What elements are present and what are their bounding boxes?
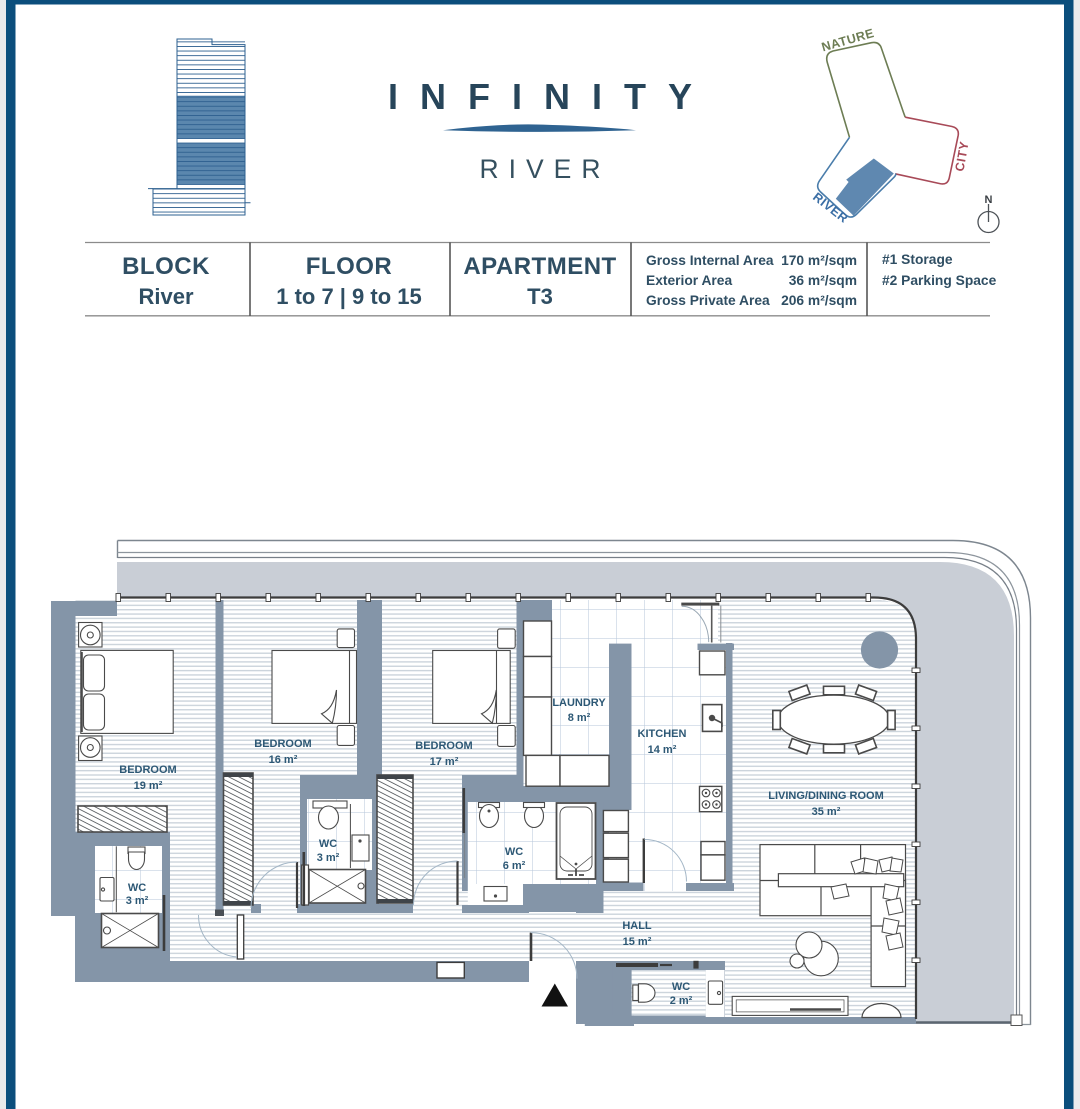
svg-text:35 m²: 35 m² bbox=[812, 806, 841, 818]
svg-text:16 m²: 16 m² bbox=[269, 754, 298, 766]
svg-text:6 m²: 6 m² bbox=[503, 860, 526, 872]
svg-text:LIVING/DINING ROOM: LIVING/DINING ROOM bbox=[768, 790, 884, 802]
svg-text:WC: WC bbox=[505, 846, 523, 858]
svg-text:HALL: HALL bbox=[622, 920, 652, 932]
svg-text:WC: WC bbox=[128, 882, 146, 894]
svg-text:INFINITY: INFINITY bbox=[388, 76, 714, 117]
svg-text:BEDROOM: BEDROOM bbox=[119, 764, 176, 776]
svg-text:FLOOR: FLOOR bbox=[306, 253, 393, 280]
svg-text:206 m²/sqm: 206 m²/sqm bbox=[781, 293, 857, 308]
svg-text:WC: WC bbox=[319, 838, 337, 850]
svg-text:8 m²: 8 m² bbox=[568, 712, 591, 724]
svg-text:#1 Storage: #1 Storage bbox=[882, 252, 953, 267]
svg-text:1 to 7 | 9 to 15: 1 to 7 | 9 to 15 bbox=[276, 284, 422, 309]
svg-text:14 m²: 14 m² bbox=[648, 744, 677, 756]
svg-text:2 m²: 2 m² bbox=[670, 995, 693, 1007]
svg-text:BLOCK: BLOCK bbox=[122, 253, 210, 280]
svg-text:LAUNDRY: LAUNDRY bbox=[552, 697, 606, 709]
svg-text:19 m²: 19 m² bbox=[134, 780, 163, 792]
svg-text:Gross Private Area: Gross Private Area bbox=[646, 293, 770, 308]
svg-text:River: River bbox=[138, 284, 193, 309]
svg-text:Exterior Area: Exterior Area bbox=[646, 273, 732, 288]
svg-text:36 m²/sqm: 36 m²/sqm bbox=[789, 273, 857, 288]
svg-text:BEDROOM: BEDROOM bbox=[254, 738, 311, 750]
svg-text:#2 Parking Space: #2 Parking Space bbox=[882, 273, 997, 288]
svg-text:N: N bbox=[985, 194, 993, 206]
svg-text:T3: T3 bbox=[527, 284, 553, 309]
svg-text:CITY: CITY bbox=[953, 140, 972, 173]
svg-text:Gross Internal Area: Gross Internal Area bbox=[646, 253, 774, 268]
svg-text:15 m²: 15 m² bbox=[623, 936, 652, 948]
svg-text:APARTMENT: APARTMENT bbox=[463, 253, 616, 280]
svg-text:WC: WC bbox=[672, 981, 690, 993]
svg-text:NATURE: NATURE bbox=[820, 26, 876, 54]
svg-text:3 m²: 3 m² bbox=[317, 852, 340, 864]
svg-text:RIVER: RIVER bbox=[480, 154, 611, 184]
svg-text:KITCHEN: KITCHEN bbox=[638, 728, 687, 740]
svg-text:3 m²: 3 m² bbox=[126, 895, 149, 907]
svg-text:17 m²: 17 m² bbox=[430, 756, 459, 768]
svg-text:170 m²/sqm: 170 m²/sqm bbox=[781, 253, 857, 268]
svg-text:BEDROOM: BEDROOM bbox=[415, 740, 472, 752]
